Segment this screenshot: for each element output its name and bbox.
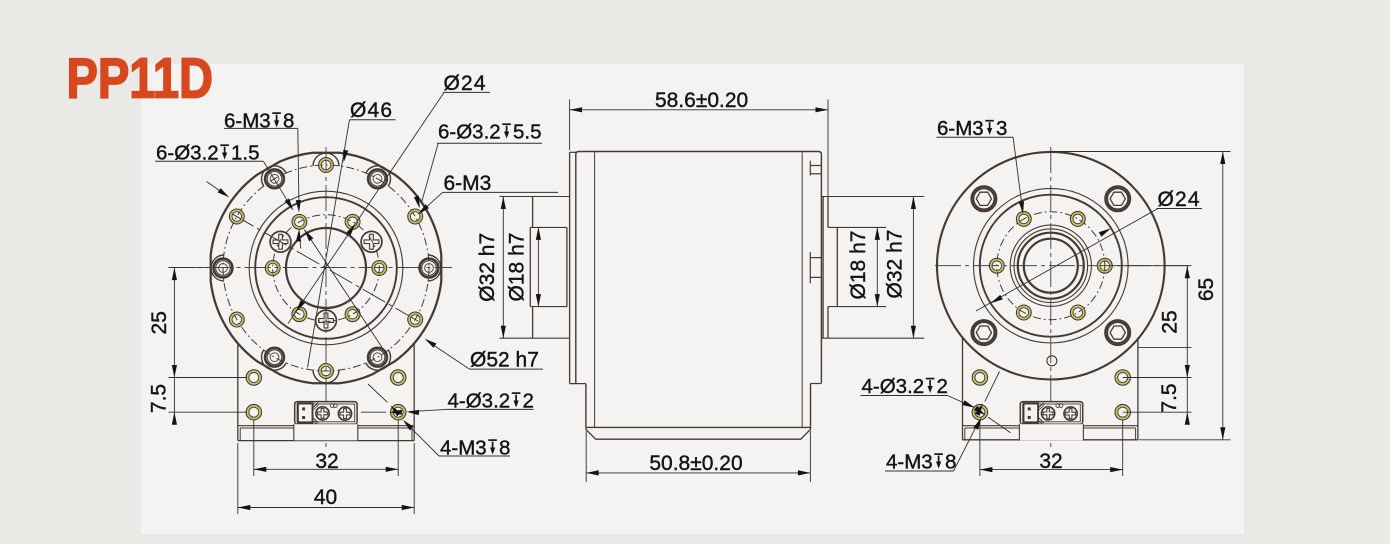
svg-text:7.5: 7.5 xyxy=(1158,383,1181,412)
svg-text:7.5: 7.5 xyxy=(148,384,171,413)
svg-text:Ø52 h7: Ø52 h7 xyxy=(470,349,539,372)
svg-text:65: 65 xyxy=(1195,278,1218,301)
svg-text:32: 32 xyxy=(1039,450,1062,473)
svg-text:Ø18 h7: Ø18 h7 xyxy=(847,231,870,300)
svg-text:8: 8 xyxy=(283,109,294,132)
svg-text:Ø24: Ø24 xyxy=(444,72,487,95)
svg-text:2: 2 xyxy=(937,375,948,398)
svg-text:6-M3: 6-M3 xyxy=(937,117,984,140)
svg-text:Ø18 h7: Ø18 h7 xyxy=(506,233,529,302)
svg-text:4-Ø3.2: 4-Ø3.2 xyxy=(862,375,925,398)
svg-text:40: 40 xyxy=(314,486,337,509)
svg-text:6-M3: 6-M3 xyxy=(224,109,271,132)
svg-text:58.6±0.20: 58.6±0.20 xyxy=(655,89,748,112)
svg-text:5.5: 5.5 xyxy=(513,121,542,144)
svg-text:6-Ø3.2: 6-Ø3.2 xyxy=(438,121,501,144)
svg-text:25: 25 xyxy=(1159,310,1182,333)
svg-text:32: 32 xyxy=(315,450,338,473)
svg-text:50.8±0.20: 50.8±0.20 xyxy=(649,452,742,475)
svg-text:6-M3: 6-M3 xyxy=(444,172,492,195)
svg-text:Ø32 h7: Ø32 h7 xyxy=(884,230,907,299)
svg-text:Ø24: Ø24 xyxy=(1158,188,1201,211)
svg-text:PP11D: PP11D xyxy=(67,47,214,110)
svg-text:3: 3 xyxy=(996,117,1007,140)
svg-text:Ø46: Ø46 xyxy=(350,99,393,122)
svg-text:Ø32 h7: Ø32 h7 xyxy=(476,233,499,302)
svg-text:25: 25 xyxy=(148,311,171,334)
svg-text:4-M3: 4-M3 xyxy=(886,451,933,474)
svg-text:8: 8 xyxy=(945,451,956,474)
